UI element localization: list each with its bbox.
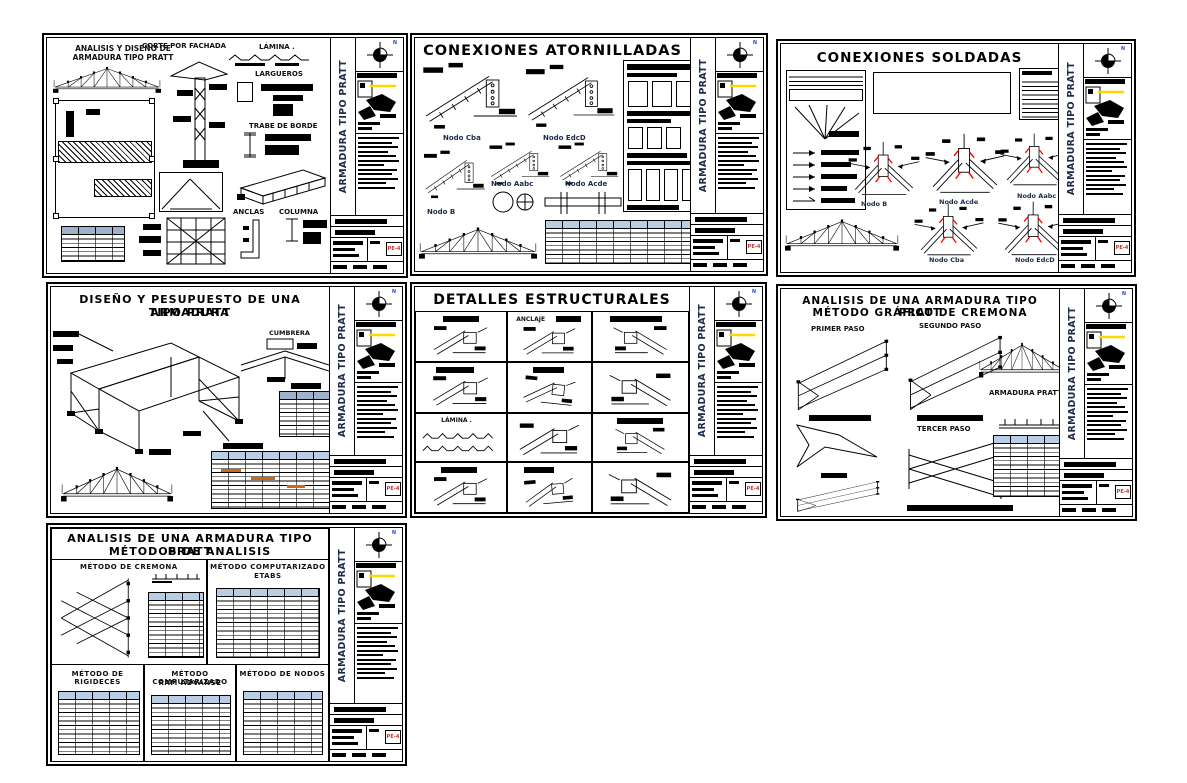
text-bar	[730, 239, 740, 242]
titleblock-row	[331, 227, 403, 238]
note-text-bar	[357, 400, 387, 402]
note-text-bar	[357, 427, 397, 429]
column-marker	[53, 213, 59, 219]
titleblock-row	[1060, 470, 1132, 481]
section-metodo-ram: MÉTODO COMPUTARIZADO RAM ADVANSE	[144, 664, 236, 761]
sheet3-drawing-area: CONEXIONES SOLDADAS	[781, 44, 1059, 272]
text-bar	[694, 470, 734, 475]
note-text-bar	[357, 632, 391, 634]
detail-title-bar	[610, 316, 663, 322]
cremona-fan-diagram	[56, 574, 142, 662]
text-bar	[1098, 240, 1108, 243]
notes-empty-box	[873, 72, 1011, 114]
note-text-bar	[1086, 166, 1127, 168]
titleblock-lower: PE-4	[330, 455, 402, 513]
note-text-bar	[1087, 402, 1117, 404]
detail-title-bar	[443, 316, 479, 322]
note-text-bar	[718, 155, 756, 157]
truss-slot	[785, 216, 899, 252]
titleblock-row	[690, 467, 762, 478]
stamp-cell	[691, 236, 728, 259]
sheet-code-badge: PE-4	[1115, 485, 1131, 499]
titleblock-project-title: ARMADURA TIPO PRATT	[338, 60, 349, 193]
label-armadura-pratt: ARMADURA PRATT	[989, 389, 1060, 397]
label-columna: COLUMNA	[279, 208, 318, 216]
text-bar	[1081, 264, 1095, 268]
note-text-bar	[357, 404, 395, 406]
stamp-cell	[330, 478, 367, 501]
note-text-bar	[718, 160, 759, 162]
text-bar	[1062, 508, 1076, 512]
baseline-bar	[821, 473, 847, 478]
text-bar	[1063, 218, 1115, 223]
note-text-bar	[717, 413, 743, 415]
location-map-icon	[355, 562, 397, 622]
section-glyph	[652, 81, 672, 107]
north-arrow-icon	[366, 532, 392, 558]
text-bar	[273, 104, 293, 116]
detail-cell	[592, 413, 689, 462]
detail-cell	[592, 362, 689, 413]
sheet-code-badge: PE-4	[746, 240, 762, 254]
connection-detail-slot	[421, 150, 489, 202]
titleblock-row	[330, 456, 402, 467]
text-bar	[627, 73, 677, 77]
titleblock-stamp-area: PE-4	[330, 478, 402, 502]
connection-detail-slot	[419, 62, 523, 134]
note-text-bar	[717, 404, 755, 406]
section-metodo-rigideces: MÉTODO DE RIGIDECES	[51, 664, 144, 761]
node-label-b: Nodo B	[861, 200, 887, 208]
lamina-profile-drawing	[227, 52, 313, 66]
table-body	[212, 460, 330, 508]
table-body	[244, 700, 322, 754]
detail-slot	[513, 420, 586, 458]
section-title-nodos: MÉTODO DE NODOS	[237, 670, 328, 678]
detail-slot	[598, 323, 682, 357]
note-text-bar	[358, 164, 384, 166]
label-primer-paso: PRIMER PASO	[811, 325, 865, 333]
location-map-thumbnail	[1085, 323, 1132, 385]
text-bar	[693, 246, 715, 249]
titleblock: ARMADURA TIPO PRATT N	[330, 528, 402, 761]
north-label: N	[392, 289, 396, 295]
text-bar	[695, 217, 747, 222]
note-text-bar	[358, 155, 396, 157]
text-bar	[732, 505, 746, 509]
titleblock-vertical-strip: ARMADURA TIPO PRATT	[330, 528, 355, 703]
lamina-profile-detail	[420, 431, 503, 454]
table-body	[546, 229, 691, 263]
text-bar	[369, 729, 379, 732]
truss-slot	[53, 64, 161, 94]
weld-spec-table	[1019, 68, 1059, 120]
anchor-bolt-drawing	[239, 218, 265, 260]
sheet1-small-table	[61, 226, 125, 262]
note-text-bar	[358, 151, 388, 153]
structural-detail-sketch	[421, 474, 500, 508]
text-bar	[333, 254, 359, 257]
note-text-bar	[358, 142, 392, 144]
titleblock-lower: PE-4	[690, 455, 762, 513]
note-text-bar	[1086, 175, 1125, 177]
sheet-conexiones-soldadas: CONEXIONES SOLDADAS	[776, 39, 1136, 277]
section-title-cremona: MÉTODO DE CREMONA	[52, 563, 206, 571]
location-map-thumbnail	[716, 72, 763, 134]
welded-connection-detail	[999, 130, 1059, 190]
pratt-truss-elevation	[419, 224, 537, 260]
structural-detail-sketch	[598, 469, 682, 509]
text-bar	[291, 383, 321, 389]
titleblock: ARMADURA TIPO PRATT N	[330, 287, 402, 513]
stamp-cell	[1059, 237, 1096, 260]
ibeam-section-drawing	[243, 132, 257, 158]
titleblock-row	[691, 214, 763, 225]
text-bar	[333, 248, 355, 251]
detail-cell	[415, 462, 507, 513]
note-text-bar	[358, 173, 392, 175]
ladder-detail	[66, 111, 74, 137]
table-header	[994, 436, 1060, 444]
text-bar	[373, 265, 387, 269]
titleblock-vertical-strip: ARMADURA TIPO PRATT	[1060, 289, 1085, 458]
location-map-icon	[716, 72, 758, 132]
titleblock-row	[690, 456, 762, 467]
highlight-text-bar	[251, 477, 275, 480]
sheet-metodos-analisis: ANALISIS DE UNA ARMADURA TIPO PRATT MÉTO…	[46, 523, 407, 766]
note-text-bar	[1086, 152, 1126, 154]
titleblock-lower: PE-4	[1059, 214, 1131, 272]
titleblock-lower: PE-4	[1060, 458, 1132, 516]
foundation-plan-grid	[165, 216, 227, 266]
location-map-icon	[1084, 78, 1126, 138]
note-text-bar	[1087, 393, 1121, 395]
titleblock-info-column: N	[356, 38, 403, 215]
north-arrow-box: N	[716, 38, 763, 72]
note-text-bar	[1087, 424, 1121, 426]
sheet-code-badge: PE-4	[385, 482, 401, 496]
text-bar	[729, 481, 739, 484]
note-text-bar	[718, 151, 748, 153]
titleblock-notes	[356, 134, 403, 215]
text-bar	[733, 263, 747, 267]
text-bar	[303, 232, 321, 244]
text-bar	[692, 505, 706, 509]
text-bar	[693, 239, 723, 243]
note-text-bar	[718, 173, 752, 175]
text-bar	[692, 481, 722, 485]
note-text-bar	[1086, 148, 1120, 150]
text-bar	[273, 95, 303, 101]
structural-detail-sketch	[513, 420, 586, 458]
structural-detail-sketch	[421, 373, 500, 408]
detail-slot	[598, 425, 682, 457]
note-text-bar	[357, 641, 387, 643]
titleblock-vertical-strip: ARMADURA TIPO PRATT	[331, 38, 356, 215]
text-bar	[1099, 484, 1109, 487]
detail-title-bar	[441, 467, 477, 473]
titleblock-row	[1059, 215, 1131, 226]
titleblock: ARMADURA TIPO PRATT N	[1059, 44, 1131, 272]
section-glyph	[628, 169, 642, 201]
note-text-bar	[358, 187, 395, 189]
titleblock-row	[330, 715, 402, 726]
truss-slot	[61, 463, 173, 503]
cremona-results-table	[148, 592, 204, 658]
titleblock-project-title: ARMADURA TIPO PRATT	[1066, 62, 1077, 195]
table-body	[994, 444, 1060, 496]
titleblock-upper: ARMADURA TIPO PRATT N	[330, 528, 402, 703]
baseline-bar	[907, 505, 1013, 511]
truss-slot	[419, 224, 537, 260]
sheet4-budget-table	[211, 451, 330, 509]
weld-detail-slot	[995, 200, 1059, 258]
titleblock-project-title: ARMADURA TIPO PRATT	[337, 304, 348, 437]
text-bar	[627, 161, 691, 165]
column-marker	[149, 213, 155, 219]
legend-row	[789, 89, 863, 101]
text-bar	[332, 729, 362, 733]
text-bar	[332, 481, 362, 485]
bolt-plan-detail	[491, 188, 537, 216]
pratt-truss-elevation	[785, 216, 899, 252]
north-arrow-icon	[726, 291, 752, 317]
note-text-bar	[717, 395, 757, 397]
pratt-truss-elevation	[979, 339, 1060, 379]
titleblock-row	[691, 225, 763, 236]
legend-grid	[789, 73, 863, 87]
titleblock-lower: PE-4	[691, 213, 763, 271]
table-body	[1022, 78, 1059, 118]
welded-connection-detail	[995, 200, 1059, 258]
column-marker	[149, 98, 155, 104]
north-arrow-icon	[1095, 48, 1121, 74]
detail-slot	[513, 324, 586, 357]
text-bar	[695, 228, 735, 233]
titleblock-project-title: ARMADURA TIPO PRATT	[698, 59, 709, 192]
text-bar	[627, 205, 679, 210]
note-text-bar	[357, 668, 397, 670]
text-bar	[713, 263, 727, 267]
titleblock-info-column: N	[715, 287, 762, 455]
text-bar	[692, 494, 718, 497]
structural-detail-sketch	[511, 371, 587, 411]
location-map-icon	[355, 321, 397, 381]
text-bar	[1061, 253, 1087, 256]
cad-sheet-montage: { "colors": { "ink": "#000000", "weld_ma…	[0, 0, 1187, 783]
text-bar	[692, 488, 714, 491]
cremona-step1	[791, 335, 901, 413]
detail-cell	[415, 362, 507, 413]
text-bar	[1063, 229, 1103, 234]
text-bar	[1061, 240, 1091, 244]
note-text-bar	[718, 187, 755, 189]
titleblock-lower: PE-4	[331, 215, 403, 273]
section-glyph	[628, 127, 643, 149]
detail-slot	[511, 371, 587, 411]
note-text-bar	[1087, 415, 1113, 417]
sheet7-drawing-area: ANALISIS DE UNA ARMADURA TIPO PRATT MÉTO…	[51, 528, 330, 761]
detail-cell	[507, 413, 592, 462]
footing-section-drawing	[159, 172, 223, 212]
text-bar	[1082, 508, 1096, 512]
section-title-ram: RAM ADVANSE	[145, 679, 235, 687]
note-text-bar	[717, 418, 756, 420]
north-arrow-icon	[366, 291, 392, 317]
note-text-bar	[717, 386, 758, 388]
detail-slot	[421, 474, 500, 508]
sheet-diseno-presupuesto: DISEÑO Y PESUPUESTO DE UNA ARMADURA TIPO…	[46, 282, 407, 518]
etabs-table	[216, 588, 320, 658]
node-label-edcd: Nodo EdcD	[543, 134, 586, 142]
titleblock-upper: ARMADURA TIPO PRATT N	[691, 38, 763, 213]
stamp-cell	[330, 726, 367, 749]
truss-slot	[979, 339, 1060, 379]
titleblock-row	[330, 750, 402, 761]
sheet2-bolts-table	[545, 220, 691, 264]
section-metodo-cremona: MÉTODO DE CREMONA	[51, 559, 207, 665]
titleblock-notes	[716, 134, 763, 213]
north-arrow-box: N	[355, 287, 402, 321]
titleblock-row	[331, 216, 403, 227]
titleblock-stamp-area: PE-4	[691, 236, 763, 260]
text-bar	[1062, 497, 1088, 500]
titleblock-info-column: N	[1084, 44, 1131, 214]
text-bar	[261, 84, 313, 91]
structural-detail-sketch	[598, 425, 682, 457]
sheet3-title: CONEXIONES SOLDADAS	[781, 50, 1058, 66]
roof-isometric-drawing	[53, 321, 253, 461]
table-header	[59, 692, 139, 700]
note-text-bar	[718, 142, 752, 144]
table-body	[62, 235, 124, 261]
column-section-drawing	[285, 218, 299, 242]
table-header	[62, 227, 124, 235]
node-label-cba: Nodo Cba	[929, 256, 964, 264]
note-text-bar	[357, 654, 383, 656]
cremona-graphical-diagram	[791, 479, 891, 513]
note-text-bar	[718, 178, 758, 180]
text-bar	[627, 64, 691, 70]
text-bar	[332, 753, 346, 757]
edge-beam-isometric	[237, 164, 329, 206]
note-text-bar	[717, 422, 751, 424]
titleblock-row	[330, 502, 402, 513]
text-bar	[352, 753, 366, 757]
text-bar	[352, 505, 366, 509]
baseline-bar	[917, 415, 983, 421]
section-glyph	[646, 169, 660, 201]
location-map-thumbnail	[1084, 78, 1131, 140]
titleblock-vertical-strip: ARMADURA TIPO PRATT	[330, 287, 355, 455]
titleblock: ARMADURA TIPO PRATT N	[691, 38, 763, 271]
text-bar	[143, 250, 161, 256]
table-header	[546, 221, 691, 229]
detail-title-bar	[533, 367, 564, 373]
facade-section-drawing	[165, 60, 235, 170]
north-label: N	[753, 40, 757, 46]
text-bar	[353, 265, 367, 269]
note-text-bar	[717, 427, 757, 429]
section-title-etabs: ETABS	[208, 572, 328, 580]
text-bar	[303, 220, 327, 228]
detail-slot	[512, 473, 587, 511]
note-text-bar	[357, 413, 383, 415]
table-header	[217, 589, 319, 597]
titleblock-stamp-area: PE-4	[331, 238, 403, 262]
cumbrera-ridge-detail	[237, 337, 330, 383]
column-marker	[149, 156, 155, 162]
bolted-connection-detail	[523, 64, 619, 132]
titleblock-notes	[355, 383, 402, 455]
connection-detail-slot	[523, 64, 619, 132]
detail-cell: LÁMINA .	[415, 413, 507, 462]
note-text-bar	[357, 436, 394, 438]
text-bar	[1064, 473, 1104, 478]
north-label: N	[752, 289, 756, 295]
note-text-bar	[357, 418, 396, 420]
note-text-bar	[1087, 420, 1126, 422]
note-text-bar	[1086, 157, 1116, 159]
sheet-code-cell: PE-4	[728, 236, 764, 259]
note-text-bar	[1087, 411, 1128, 413]
note-text-bar	[718, 182, 746, 184]
titleblock: ARMADURA TIPO PRATT N	[1060, 289, 1132, 516]
titleblock-row	[690, 502, 762, 513]
titleblock-upper: ARMADURA TIPO PRATT N	[331, 38, 403, 215]
note-text-bar	[718, 146, 758, 148]
sheet2-title: CONEXIONES ATORNILLADAS	[415, 43, 690, 59]
note-text-bar	[1086, 188, 1114, 190]
structural-detail-sketch	[598, 370, 682, 409]
titleblock-upper: ARMADURA TIPO PRATT N	[1060, 289, 1132, 458]
detail-cell	[592, 462, 689, 513]
titleblock: ARMADURA TIPO PRATT N	[690, 287, 762, 513]
note-text-bar	[357, 677, 394, 679]
column-marker	[53, 98, 59, 104]
table-body	[59, 700, 139, 754]
note-text-bar	[357, 422, 391, 424]
text-bar	[369, 481, 379, 484]
note-text-bar	[357, 627, 398, 629]
north-arrow-box: N	[1084, 44, 1131, 78]
section-glyph	[676, 81, 691, 107]
table-body	[149, 601, 203, 657]
note-text-bar	[718, 164, 744, 166]
note-text-bar	[357, 395, 397, 397]
text-bar	[1064, 462, 1116, 467]
titleblock-vertical-strip: ARMADURA TIPO PRATT	[1059, 44, 1084, 214]
text-bar	[332, 505, 346, 509]
ram-table	[151, 695, 231, 755]
welded-connection-detail	[909, 202, 989, 258]
titleblock-stamp-area: PE-4	[1059, 237, 1131, 261]
detail-cell	[592, 311, 689, 362]
text-bar	[334, 470, 374, 475]
sheet6-results-table	[993, 435, 1060, 497]
sheet-code-badge: PE-4	[386, 242, 402, 256]
note-text-bar	[357, 650, 398, 652]
column-marker	[53, 156, 59, 162]
label-trabe-de-borde: TRABE DE BORDE	[249, 122, 317, 130]
note-text-bar	[357, 645, 395, 647]
north-arrow-icon	[1096, 293, 1122, 319]
sheet-code-cell: PE-4	[368, 238, 404, 261]
sheet5-title: DETALLES ESTRUCTURALES	[415, 292, 689, 308]
note-text-bar	[357, 672, 385, 674]
node-label-edcd: Nodo EdcD	[1015, 256, 1055, 264]
load-diagram	[150, 572, 202, 584]
